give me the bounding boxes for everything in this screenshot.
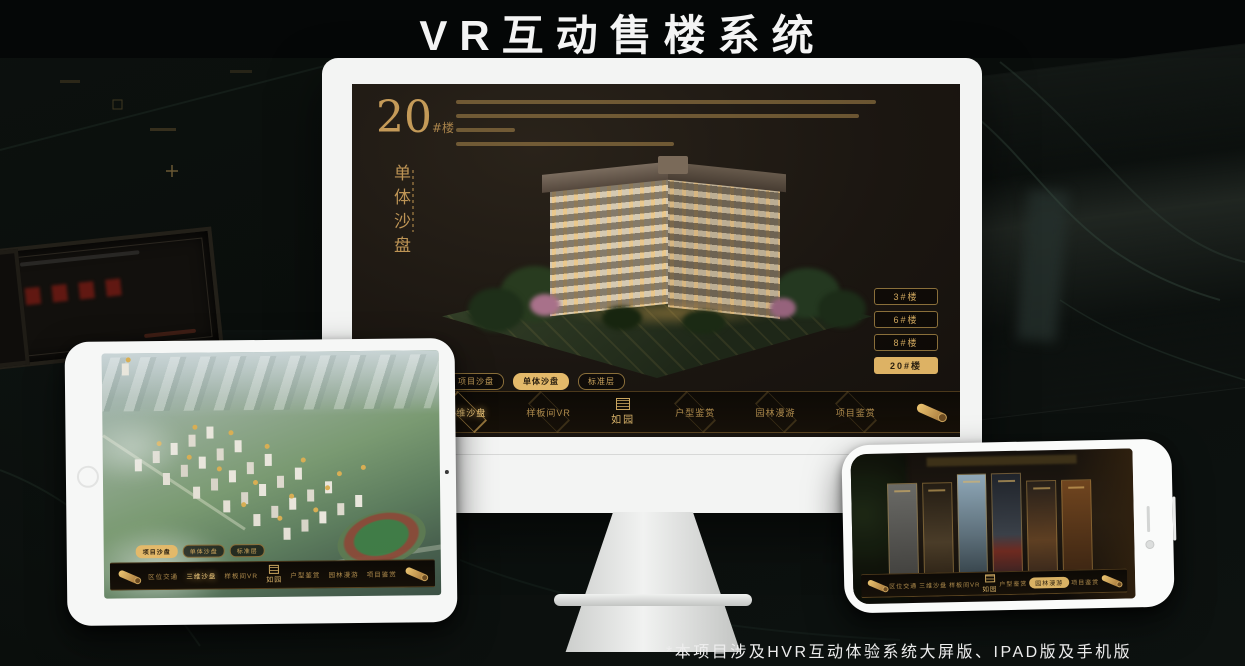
phone-screen: 区位交通 三维沙盘 样板间VR 如园 户型鉴赏 园林漫游 项目鉴赏 [850, 448, 1135, 604]
tablet-view-tab-group: 项目沙盘 单体沙盘 标准层 [136, 544, 265, 558]
gallery-card[interactable] [1061, 479, 1093, 580]
nav-item-model-room-vr[interactable]: 样板间VR [949, 579, 981, 589]
camera-icon [445, 470, 449, 474]
gallery-card[interactable] [957, 473, 989, 586]
blossom-tree [530, 294, 560, 316]
floor-button-20[interactable]: 20#楼 [874, 357, 938, 374]
nav-item-project-gallery[interactable]: 项目鉴赏 [836, 406, 876, 419]
nav-item-3d-sandbox[interactable]: 三维沙盘 [186, 570, 216, 580]
stage: VR互动售楼系统 20#楼 单体沙盘 [0, 0, 1245, 666]
scroll-icon[interactable] [867, 579, 888, 592]
monitor-base [554, 594, 752, 606]
gate-eave [927, 455, 1077, 467]
tablet-tab-standard-floor[interactable]: 标准层 [230, 544, 265, 557]
building-light-glow [562, 298, 782, 328]
hedge [682, 310, 726, 334]
nav-item-location-transport[interactable]: 区位交通 [148, 571, 178, 581]
home-button[interactable] [77, 466, 99, 488]
brand-logo: 如园 [266, 565, 282, 585]
monitor-stand [558, 512, 748, 652]
building-3d-render [422, 148, 892, 388]
nav-item-garden-roam[interactable]: 园林漫游 [756, 406, 796, 419]
footnote-text: *本项目涉及HVR互动体验系统大屏版、IPAD版及手机版 [666, 638, 1132, 662]
tablet-tab-single-building-sandbox[interactable]: 单体沙盘 [183, 544, 225, 557]
nav-item-floorplan-gallery[interactable]: 户型鉴赏 [675, 406, 715, 419]
nav-item-location-transport[interactable]: 区位交通 [889, 580, 917, 590]
side-button[interactable] [1172, 496, 1176, 540]
cloud-mist [102, 413, 187, 484]
nav-item-floorplan-gallery[interactable]: 户型鉴赏 [999, 578, 1027, 588]
scroll-icon[interactable] [117, 569, 140, 584]
river-photo-detail [1016, 189, 1069, 342]
section-subtitle-mark [412, 170, 414, 232]
scroll-icon[interactable] [404, 566, 427, 581]
tree-cluster [468, 288, 524, 332]
nav-item-garden-roam[interactable]: 园林漫游 [1029, 576, 1069, 588]
aerial-buildings [122, 363, 129, 375]
phone-device: 区位交通 三维沙盘 样板间VR 如园 户型鉴赏 园林漫游 项目鉴赏 [841, 439, 1174, 614]
tree-cluster [818, 290, 866, 328]
floor-button-6[interactable]: 6#楼 [874, 311, 938, 328]
camera-icon [1145, 540, 1154, 549]
building-facade-left [550, 176, 668, 316]
tab-project-sandbox[interactable]: 项目沙盘 [448, 373, 504, 390]
page-title: VR互动售楼系统 [0, 2, 1245, 63]
building-number: 20 [376, 92, 432, 143]
gallery-card[interactable] [922, 482, 954, 583]
building-roof-center [658, 156, 688, 174]
brand-logo-text: 如园 [266, 575, 282, 585]
tablet-main-nav: 区位交通 三维沙盘 样板间VR 如园 户型鉴赏 园林漫游 项目鉴赏 [110, 559, 435, 590]
brand-logo: 如园 [982, 574, 997, 593]
tablet-tab-project-sandbox[interactable]: 项目沙盘 [136, 545, 178, 558]
tab-standard-floor[interactable]: 标准层 [578, 373, 625, 390]
floor-button-group: 3#楼 6#楼 8#楼 20#楼 [874, 288, 938, 374]
nav-item-floorplan-gallery[interactable]: 户型鉴赏 [290, 569, 320, 579]
building-unit: #楼 [432, 121, 454, 135]
scene-gallery [887, 479, 1093, 583]
section-title-vertical: 单体沙盘 [388, 164, 413, 260]
brand-logo: 如园 [611, 398, 635, 426]
building-heading: 20#楼 [376, 96, 454, 140]
building-number-badges [126, 357, 131, 362]
tablet-device: 项目沙盘 单体沙盘 标准层 区位交通 三维沙盘 样板间VR 如园 户型鉴赏 园林… [65, 338, 458, 626]
floor-button-8[interactable]: 8#楼 [874, 334, 938, 351]
blossom-tree [770, 298, 796, 318]
nav-item-project-gallery[interactable]: 项目鉴赏 [1071, 577, 1099, 587]
gallery-card[interactable] [1026, 480, 1058, 581]
nav-item-3d-sandbox[interactable]: 三维沙盘 [919, 580, 947, 590]
scroll-icon[interactable] [915, 402, 946, 422]
nav-item-project-gallery[interactable]: 项目鉴赏 [367, 569, 397, 579]
brand-logo-text: 如园 [982, 583, 997, 593]
nav-item-model-room-vr[interactable]: 样板间VR [224, 570, 258, 580]
nav-item-garden-roam[interactable]: 园林漫游 [328, 569, 358, 579]
seal-icon [269, 565, 279, 574]
view-tab-group: 项目沙盘 单体沙盘 标准层 [448, 373, 625, 390]
speaker-slot-icon [1147, 506, 1151, 532]
floor-button-3[interactable]: 3#楼 [874, 288, 938, 305]
phone-notch-area [1132, 448, 1165, 599]
nav-item-model-room-vr[interactable]: 样板间VR [526, 406, 571, 419]
gallery-card[interactable] [887, 483, 919, 584]
tablet-screen: 项目沙盘 单体沙盘 标准层 区位交通 三维沙盘 样板间VR 如园 户型鉴赏 园林… [102, 350, 442, 599]
tab-single-building-sandbox[interactable]: 单体沙盘 [513, 373, 569, 390]
seal-icon [985, 574, 995, 582]
hedge [602, 306, 642, 330]
seal-icon [616, 398, 630, 410]
aerial-factory-rows [102, 354, 442, 412]
brand-logo-text: 如园 [611, 411, 635, 426]
gallery-card[interactable] [991, 473, 1023, 586]
scroll-icon[interactable] [1101, 574, 1122, 587]
